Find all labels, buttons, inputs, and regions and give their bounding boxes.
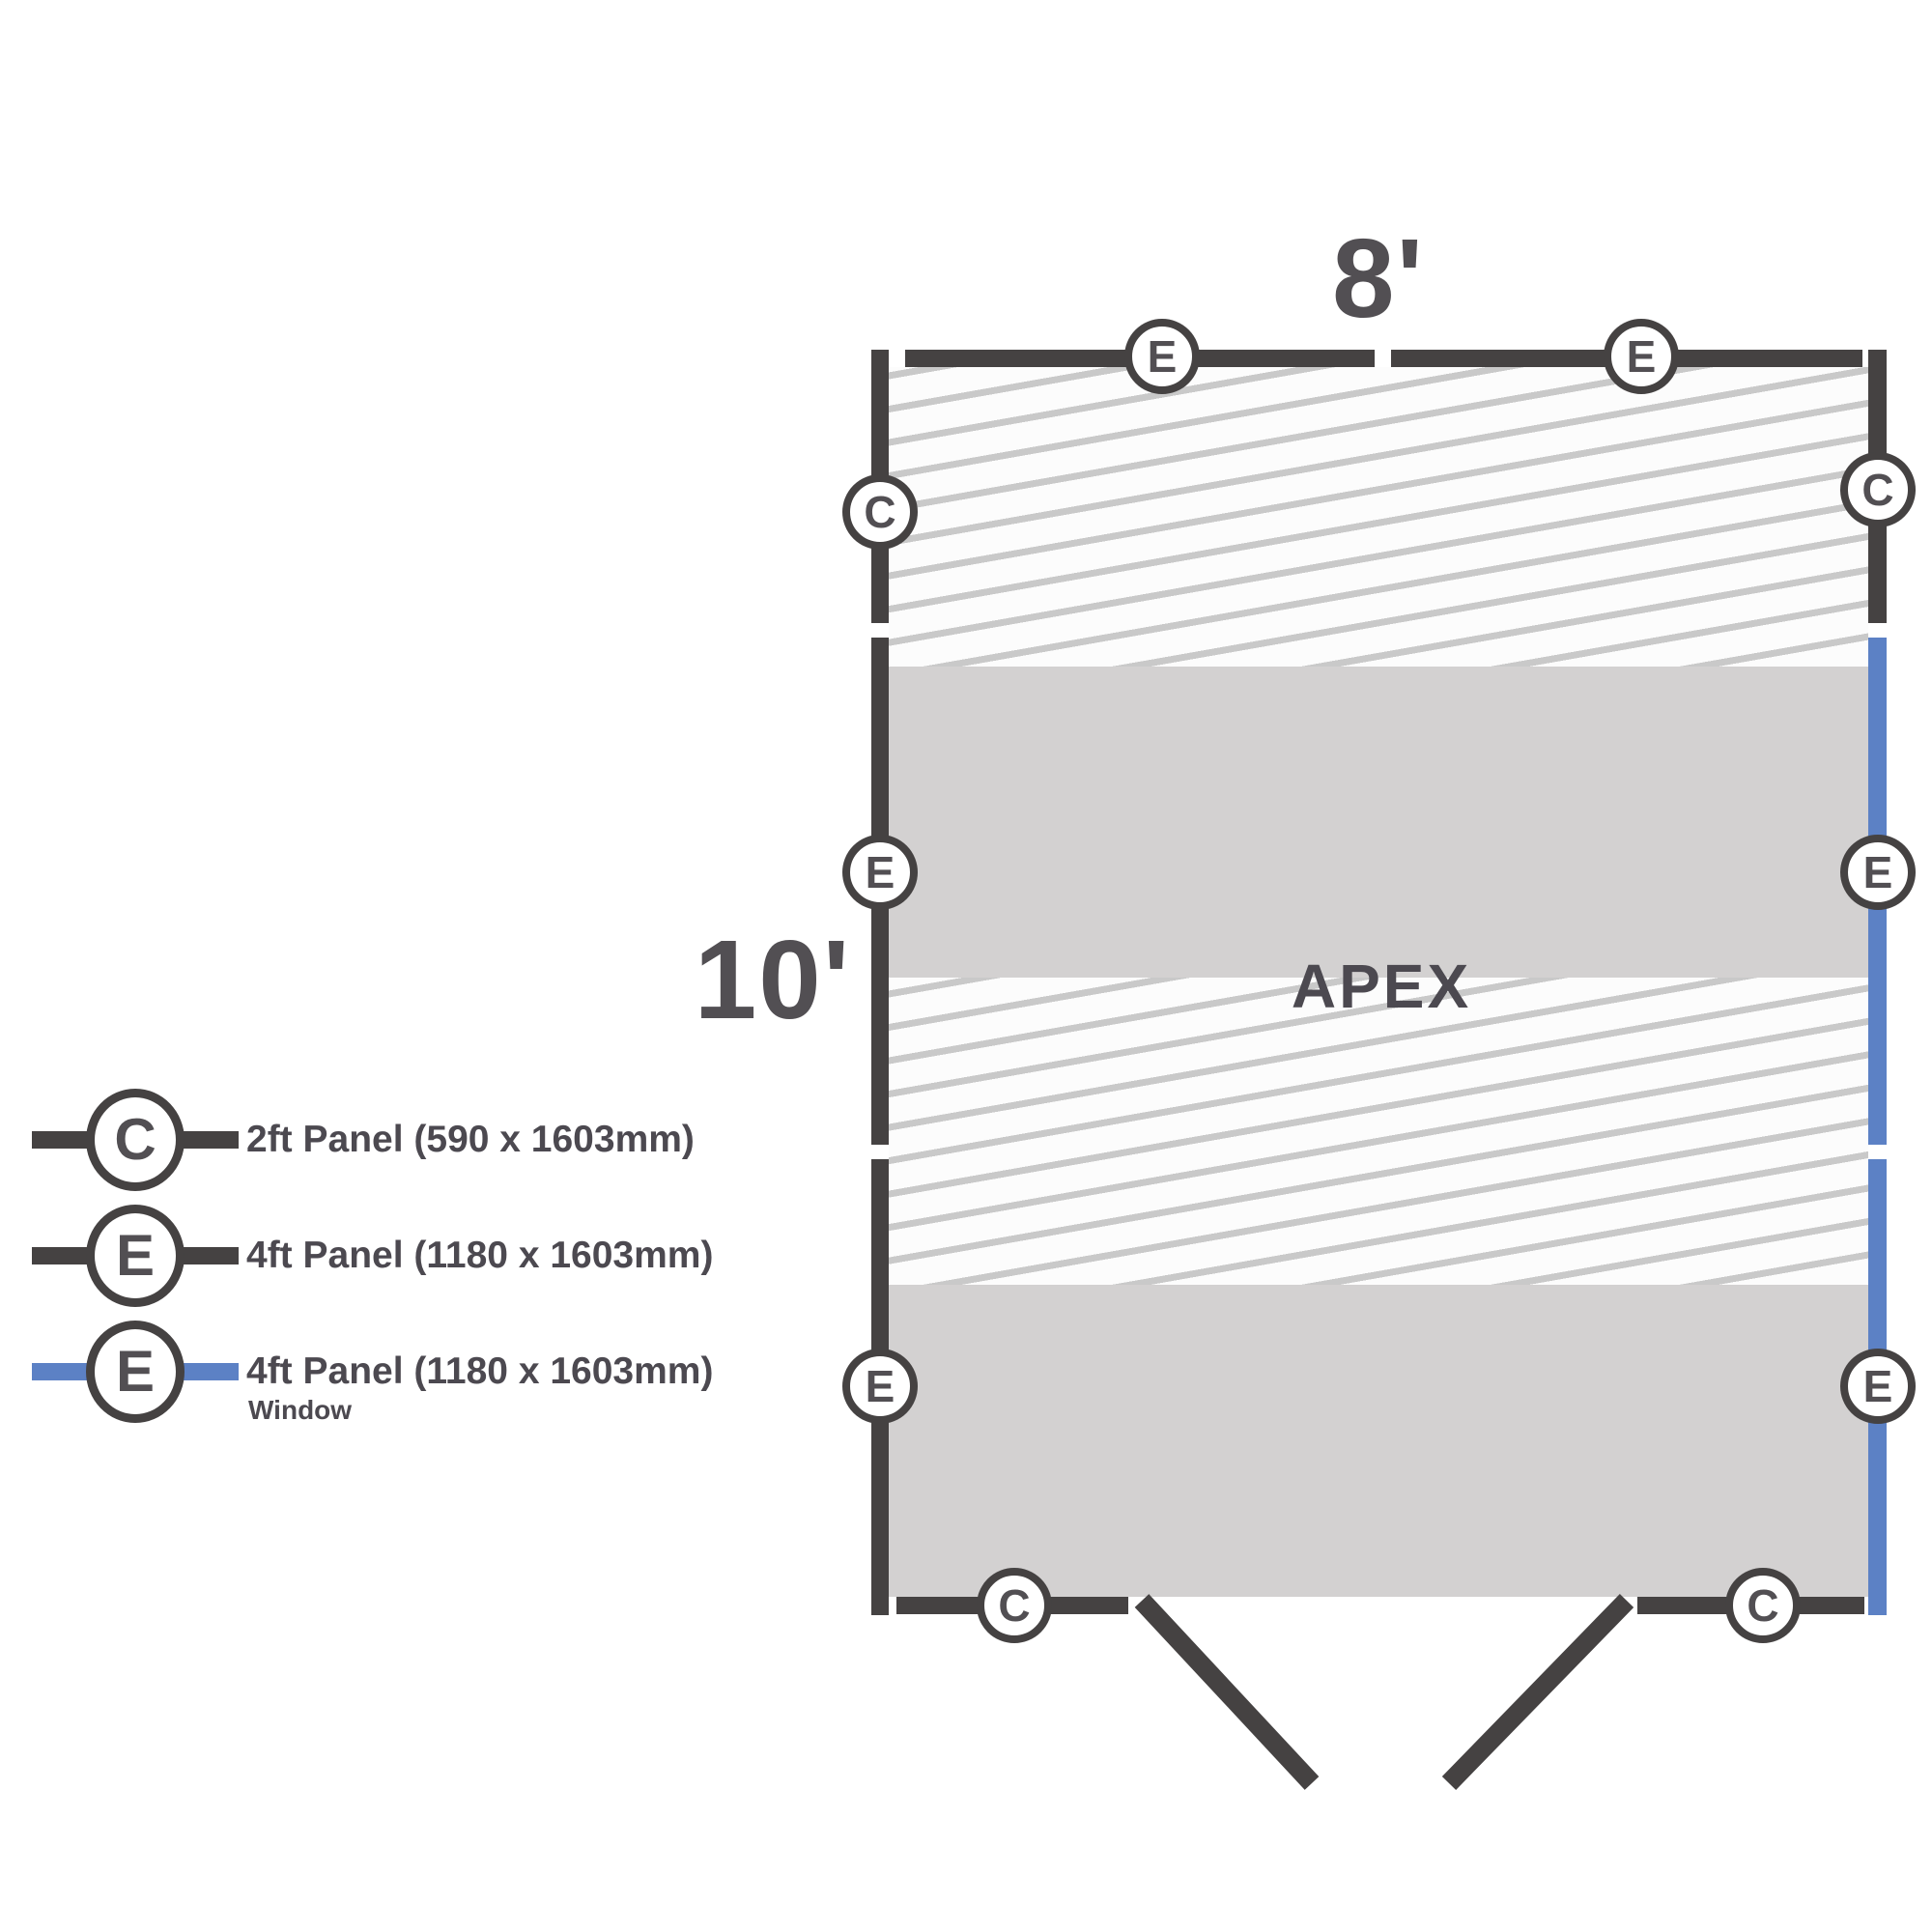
roof-style-label: APEX — [1292, 951, 1471, 1022]
panel-marker-left-c: C — [842, 474, 918, 550]
depth-dimension-label: 10' — [695, 915, 852, 1044]
panel-marker-left-e1: E — [842, 835, 918, 910]
panel-marker-left-e2: E — [842, 1349, 918, 1424]
panel-marker-bottom-c1: C — [977, 1568, 1052, 1643]
legend-marker-e-window: E — [86, 1321, 185, 1423]
shed-floorplan-diagram: 8' 10' APEX E E C E E C E E C C C 2ft Pa… — [0, 0, 1932, 1932]
door-leaf-left-line — [1142, 1601, 1312, 1783]
panel-marker-bottom-c2: C — [1725, 1568, 1801, 1643]
width-dimension-label: 8' — [1332, 213, 1425, 343]
panel-marker-right-e1: E — [1840, 835, 1916, 910]
door-leaf-right-line — [1449, 1601, 1627, 1783]
legend-marker-c: C — [86, 1089, 185, 1191]
panel-marker-right-c: C — [1840, 452, 1916, 527]
panel-marker-top-e2: E — [1604, 319, 1679, 394]
legend-marker-e: E — [86, 1205, 185, 1307]
panel-marker-top-e1: E — [1124, 319, 1200, 394]
double-door-swing — [0, 0, 1932, 1932]
panel-marker-right-e2: E — [1840, 1349, 1916, 1424]
